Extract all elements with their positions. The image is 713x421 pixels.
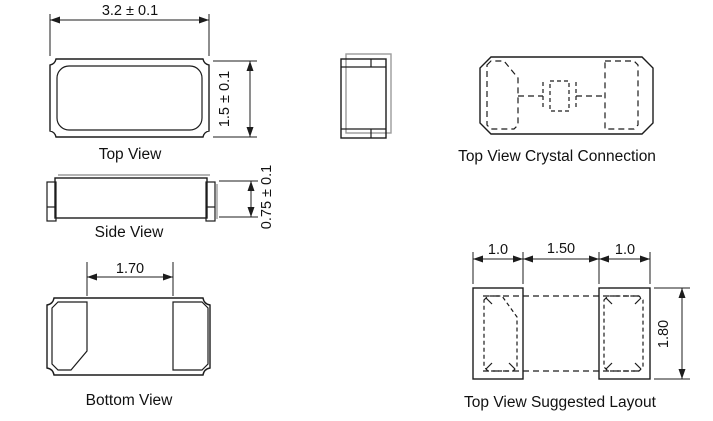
bottom-view-group: 1.70 Bottom View [47, 261, 210, 409]
layout-right-land [599, 288, 650, 379]
layout-right-pad-dim: 1.0 [615, 242, 635, 258]
pad-corner-notch [486, 298, 492, 304]
end-view-shadow [346, 54, 391, 133]
side-view-group: 0.75 ± 0.1 Side View [47, 165, 275, 241]
pad-corner-notch [635, 363, 641, 369]
pad-corner-notch [606, 298, 612, 304]
side-view-height-dim: 0.75 ± 0.1 [259, 165, 275, 229]
bottom-view-body-outline [47, 298, 210, 375]
layout-left-land [473, 288, 523, 379]
pad-corner-notch [635, 298, 641, 304]
pad-corner-notch [606, 363, 612, 369]
package-drawing: 3.2 ± 0.1 1.5 ± 0.1 Top View 0.75 ± 0.1 … [0, 0, 713, 421]
top-view-body-outline [50, 59, 209, 137]
layout-left-pad-dashed [484, 296, 517, 371]
crystal-connection-body-outline [480, 57, 653, 134]
end-view-body [341, 59, 386, 138]
suggested-layout-group: 1.0 1.50 1.0 1.80 Top View Suggested Lay… [464, 241, 690, 411]
layout-height-dim: 1.80 [656, 320, 672, 348]
crystal-connection-left-pad [487, 61, 518, 129]
side-view-body [55, 178, 207, 218]
layout-right-pad-dashed [604, 296, 643, 371]
drawing-sheet: 3.2 ± 0.1 1.5 ± 0.1 Top View 0.75 ± 0.1 … [0, 0, 713, 421]
bottom-view-left-pad [52, 302, 87, 370]
bottom-view-right-pad [173, 302, 208, 370]
layout-gap-dim: 1.50 [547, 241, 575, 257]
top-view-height-dim: 1.5 ± 0.1 [217, 71, 233, 127]
crystal-symbol-body [550, 81, 569, 111]
layout-left-pad-dim: 1.0 [488, 242, 508, 258]
end-view-group [341, 54, 391, 138]
top-view-group: 3.2 ± 0.1 1.5 ± 0.1 Top View [50, 3, 257, 163]
bottom-view-pad-gap-dim: 1.70 [116, 261, 144, 277]
top-view-inner-cavity [57, 66, 202, 130]
side-view-label: Side View [95, 224, 164, 241]
top-view-label: Top View [99, 146, 162, 163]
crystal-connection-label: Top View Crystal Connection [458, 148, 656, 165]
suggested-layout-label: Top View Suggested Layout [464, 394, 657, 411]
crystal-connection-right-pad [605, 61, 638, 129]
pad-corner-notch [486, 363, 492, 369]
top-view-width-dim: 3.2 ± 0.1 [102, 3, 158, 19]
pad-corner-notch [509, 363, 515, 369]
bottom-view-label: Bottom View [86, 392, 174, 409]
crystal-connection-group: Top View Crystal Connection [458, 57, 656, 165]
